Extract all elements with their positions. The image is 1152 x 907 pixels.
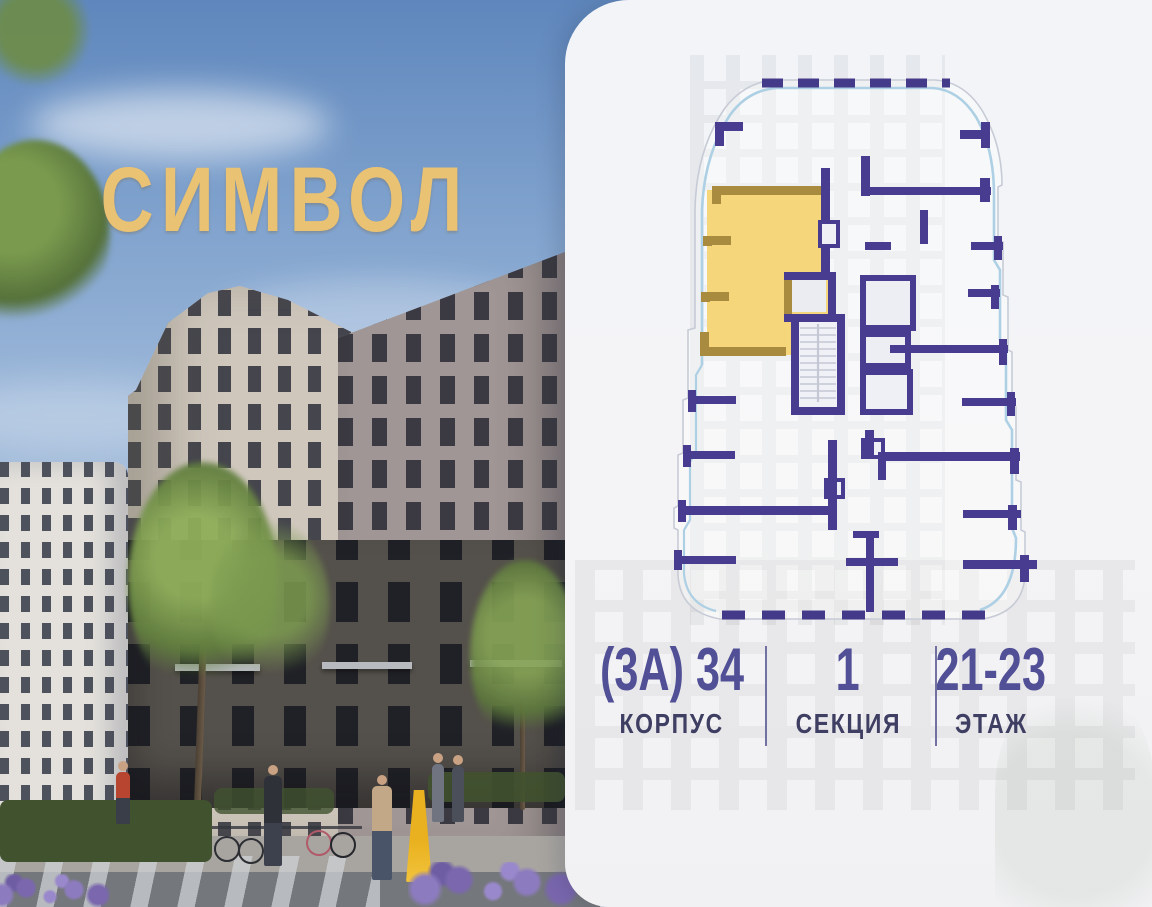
project-logo: СИМВОЛ: [73, 148, 497, 253]
bicycle: [214, 836, 240, 862]
floor-label: ЭТАЖ: [881, 710, 1101, 738]
storefront-awning: [322, 662, 412, 669]
apartment-info-bar: (3А) 34 КОРПУС 1 СЕКЦИЯ 21-23 ЭТАЖ: [565, 640, 1152, 770]
person-head: [453, 755, 463, 765]
bicycle: [306, 830, 332, 856]
pedestrian: [264, 776, 282, 866]
bicycle: [238, 838, 264, 864]
pedestrian: [432, 764, 444, 822]
corpus-value: (3А) 34: [600, 640, 744, 700]
hedge: [0, 800, 212, 862]
stairwell: [791, 314, 845, 415]
apartment-card-panel: (3А) 34 КОРПУС 1 СЕКЦИЯ 21-23 ЭТАЖ: [565, 0, 1152, 907]
pedestrian: [372, 786, 392, 880]
tree-foliage: [210, 520, 330, 690]
person-head: [118, 761, 128, 771]
lavender-flowers: [0, 874, 110, 907]
lavender-flowers: [408, 862, 578, 907]
person-head: [377, 775, 387, 785]
floor-info: 21-23 ЭТАЖ: [881, 640, 1101, 738]
pedestrian: [452, 766, 464, 822]
bike-rack: [212, 826, 362, 829]
apartment-niche: [820, 222, 838, 246]
hedge: [428, 772, 565, 802]
section-value: 1: [836, 640, 860, 700]
apartment-bathroom: [792, 280, 826, 312]
floor-plan: [650, 60, 1060, 626]
person-head: [268, 765, 278, 775]
pedestrian: [116, 772, 130, 824]
bicycle: [330, 832, 356, 858]
person-head: [433, 753, 443, 763]
floor-value: 21-23: [936, 640, 1046, 700]
